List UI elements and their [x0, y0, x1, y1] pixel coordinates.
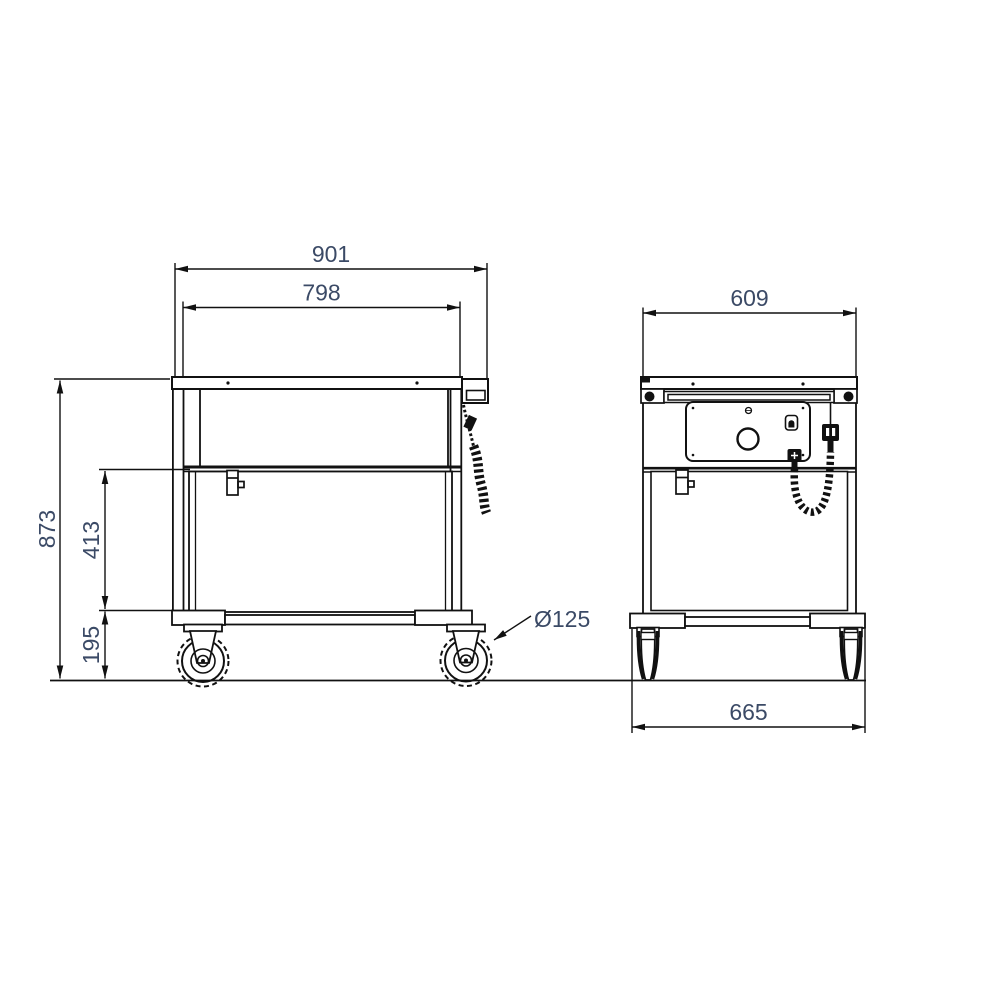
control-panel: [686, 402, 810, 469]
dimension-top-depth: 609: [643, 285, 856, 377]
dim-top-depth-label: 609: [730, 285, 768, 311]
dimension-caster-diameter: Ø125: [494, 606, 590, 640]
dim-overall-height-label: 873: [34, 510, 60, 548]
technical-drawing: 901 798 609 873 413 195: [0, 0, 1000, 1000]
dim-undercarriage-height-label: 195: [78, 626, 104, 664]
counter-top: [641, 377, 857, 389]
front-view: [630, 377, 865, 680]
counter-bolt: [226, 381, 229, 384]
dim-base-depth-label: 665: [729, 699, 767, 725]
underframe: [630, 614, 865, 629]
panel-screw: [802, 407, 805, 410]
bumper-rail: [641, 389, 857, 403]
dimension-undercarriage-height: 195: [78, 612, 105, 679]
dim-caster-diameter-label: Ø125: [534, 606, 590, 632]
bumper-cap-left: [645, 392, 655, 402]
dimension-body-length: 798: [183, 280, 460, 377]
caster-axle: [464, 659, 468, 663]
side-view: [172, 377, 492, 687]
caster-right: [441, 625, 492, 687]
panel-screw: [802, 454, 805, 457]
dimension-overall-length: 901: [175, 241, 487, 379]
caster-axle: [201, 659, 205, 663]
dim-body-length-label: 798: [302, 280, 340, 306]
push-rail: [664, 392, 834, 403]
leader-line: [494, 616, 531, 640]
counter-corner-mark: [641, 377, 650, 383]
bumper-cap-right: [844, 392, 854, 402]
panel-screw: [692, 454, 695, 457]
cable-clip: [463, 415, 477, 431]
plug-icon: [822, 424, 839, 452]
drawing-canvas: 901 798 609 873 413 195: [0, 0, 1000, 1000]
caster-front-left: [637, 628, 659, 681]
upper-panel: [184, 389, 462, 472]
counter-top: [172, 377, 462, 389]
caster-fork: [190, 631, 216, 663]
counter-bolt: [691, 382, 694, 385]
socket-bracket: [462, 379, 488, 403]
socket-icon: [788, 449, 802, 469]
coiled-cable: [463, 405, 486, 513]
counter-bolt: [801, 382, 804, 385]
caster-fork: [453, 631, 479, 663]
caster-front-right: [840, 628, 862, 681]
dim-overall-length-label: 901: [312, 241, 350, 267]
panel-screw: [692, 407, 695, 410]
counter-bolt: [415, 381, 418, 384]
caster-left: [178, 625, 229, 687]
dim-body-height-label: 413: [78, 521, 104, 559]
